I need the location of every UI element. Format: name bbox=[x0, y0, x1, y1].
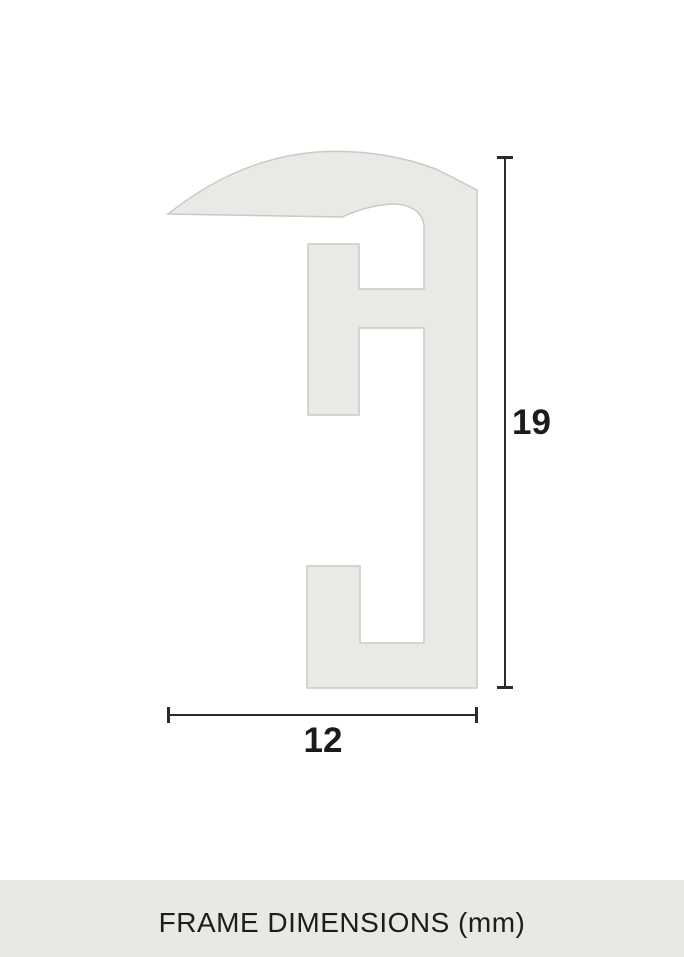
width-dimension-label: 12 bbox=[288, 723, 358, 758]
diagram-area: 19 12 bbox=[0, 0, 684, 880]
height-dimension-line bbox=[497, 158, 513, 688]
height-dimension-label: 19 bbox=[512, 405, 551, 440]
frame-profile-shape bbox=[168, 151, 477, 688]
footer-bar: FRAME DIMENSIONS (mm) bbox=[0, 880, 684, 957]
footer-caption: FRAME DIMENSIONS (mm) bbox=[159, 907, 526, 939]
